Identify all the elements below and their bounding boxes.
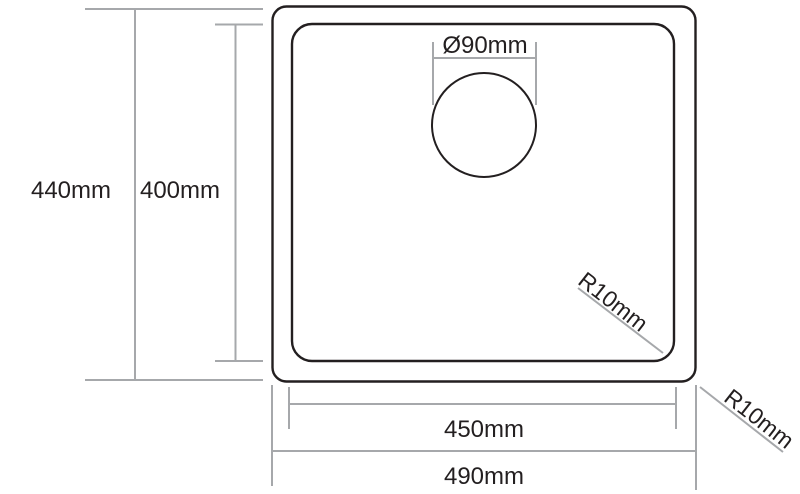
sink-dimension-diagram: 440mm 400mm Ø90mm 450mm 490mm R10mm R10m…	[0, 0, 800, 494]
label-bowl-height: 400mm	[140, 179, 220, 203]
label-drain-diameter: Ø90mm	[442, 34, 527, 58]
diagram-canvas	[0, 0, 800, 494]
label-bowl-width: 450mm	[444, 418, 524, 442]
label-overall-width: 490mm	[444, 465, 524, 489]
drain-hole-circle	[432, 73, 536, 177]
label-overall-height: 440mm	[31, 179, 111, 203]
